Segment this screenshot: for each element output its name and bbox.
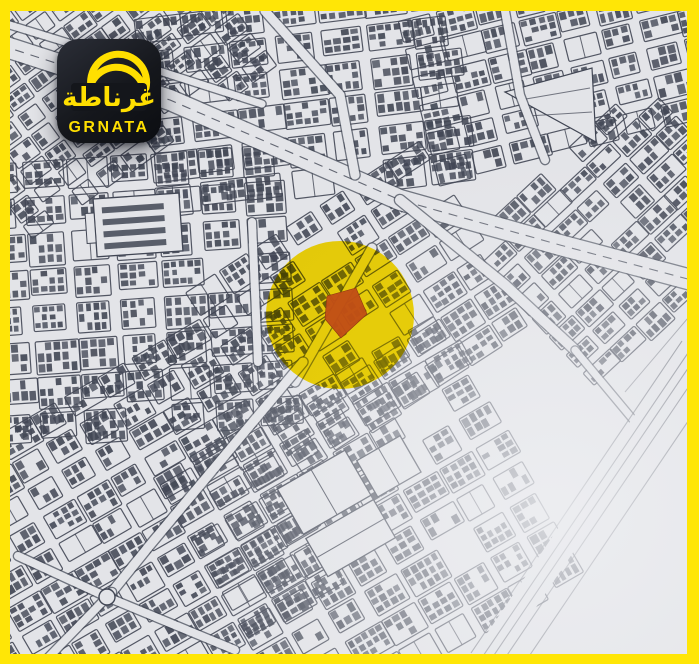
logo-latin-text: GRNATA bbox=[68, 119, 149, 136]
logo-arabic-text: غرناطة bbox=[62, 83, 156, 113]
grnata-logo: غرناطة GRNATA bbox=[57, 39, 161, 143]
poster-frame: غرناطة GRNATA bbox=[0, 0, 699, 664]
grnata-logo-art: غرناطة GRNATA bbox=[57, 39, 161, 143]
